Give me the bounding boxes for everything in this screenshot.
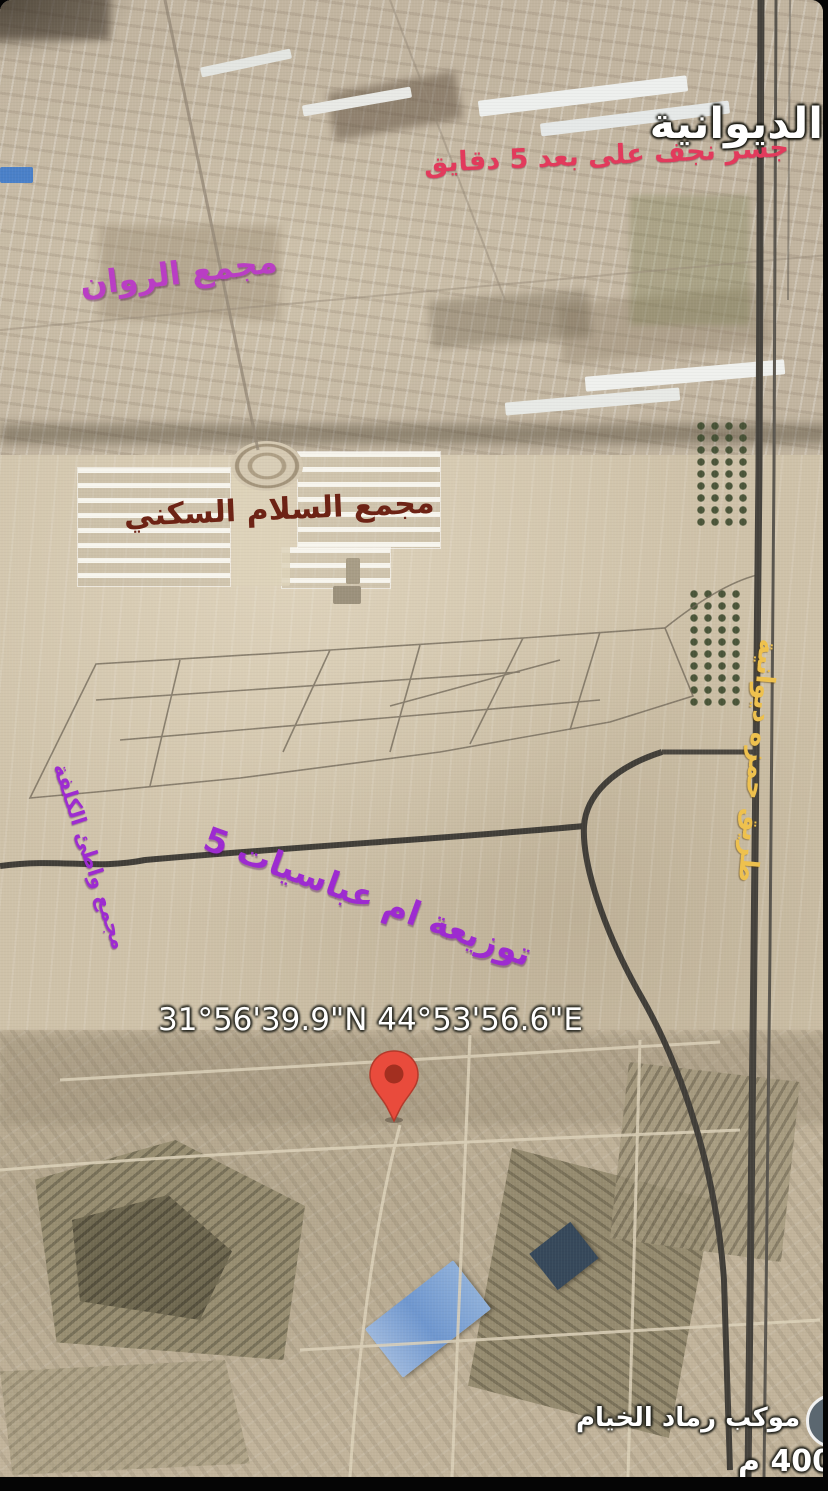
road-network [0, 0, 823, 1477]
screenshot-frame: الديوانية جسر نجف على بعد 5 دقايق مجمع ا… [0, 0, 828, 1491]
distance-label: 400 م [738, 1444, 823, 1477]
red-map-pin-icon[interactable] [368, 1050, 420, 1124]
mawkib-place-label: موكب رماد الخيام [576, 1403, 800, 1433]
satellite-map-canvas[interactable]: الديوانية جسر نجف على بعد 5 دقايق مجمع ا… [0, 0, 823, 1477]
gps-coordinates-label: 31°56'39.9"N 44°53'56.6"E [158, 1002, 583, 1038]
